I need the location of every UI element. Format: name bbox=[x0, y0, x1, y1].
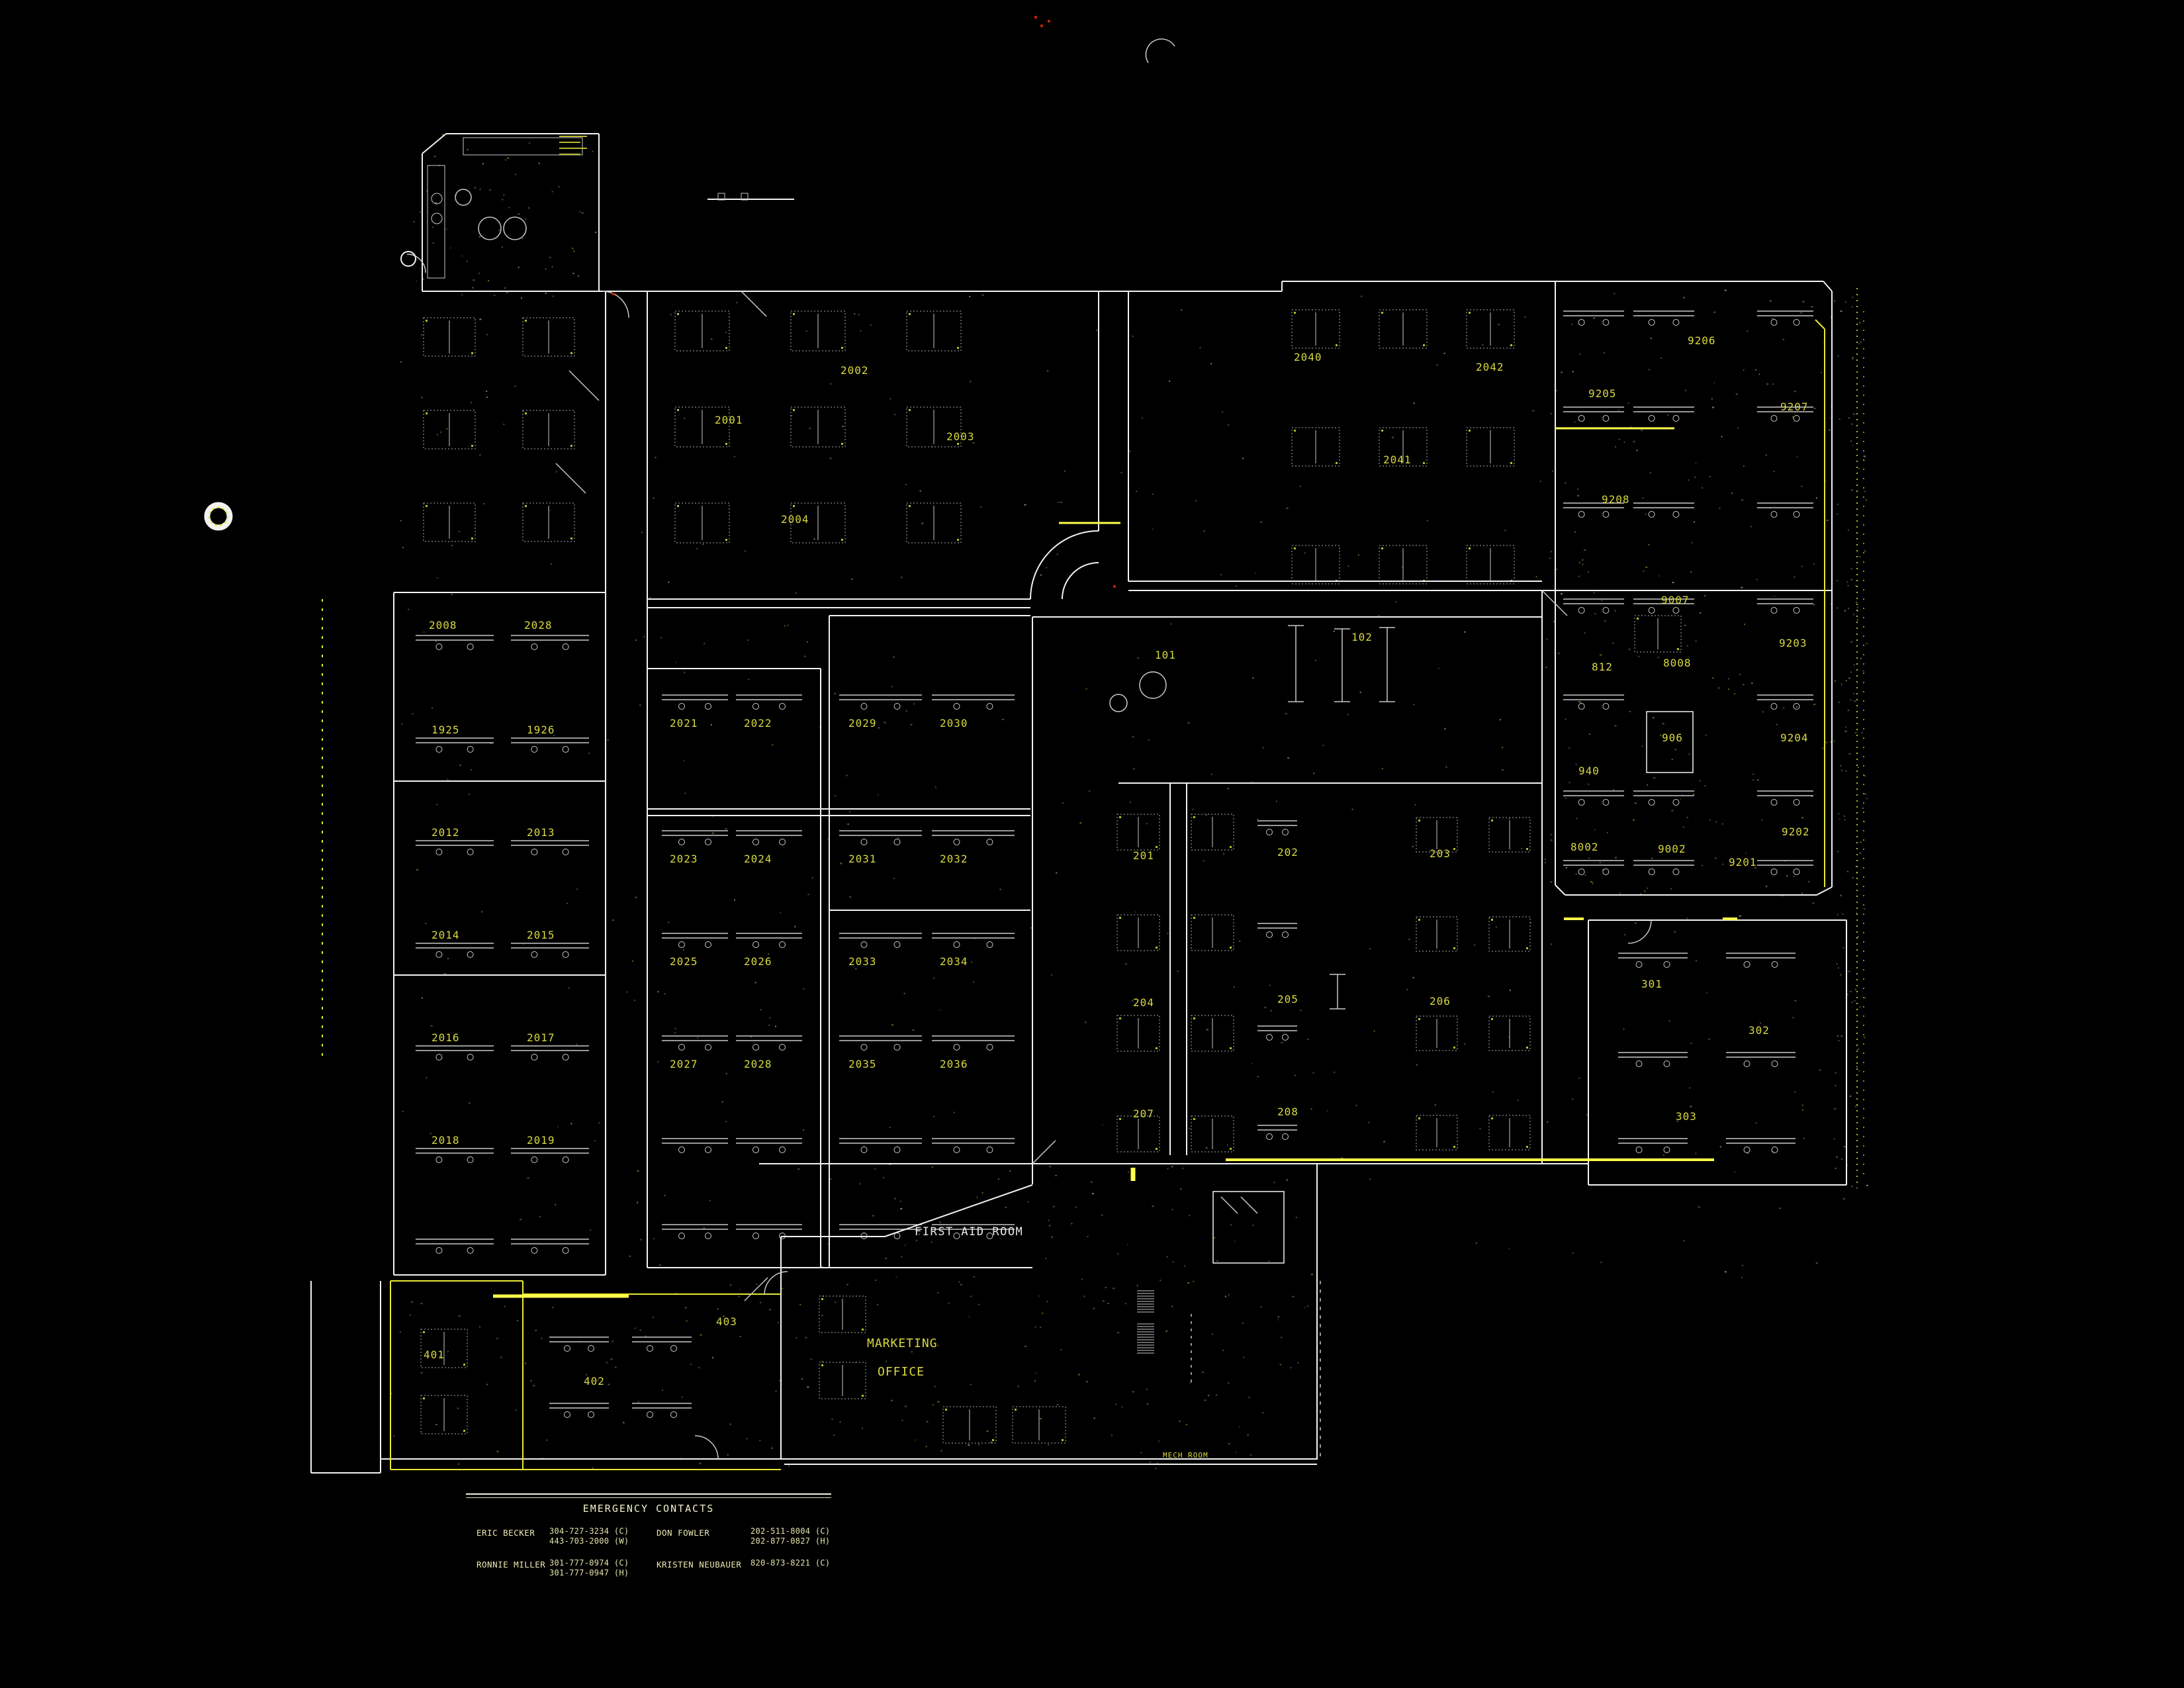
cubicle-speck bbox=[1418, 1117, 1420, 1119]
noise-dot bbox=[1747, 330, 1748, 332]
noise-dot bbox=[592, 151, 594, 152]
noise-dot bbox=[1865, 793, 1866, 794]
noise-dot bbox=[1315, 660, 1316, 661]
workstation-label: 9201 bbox=[1729, 856, 1757, 868]
noise-dot bbox=[891, 1400, 893, 1401]
noise-dot bbox=[641, 1239, 642, 1241]
noise-dot bbox=[1093, 1308, 1095, 1309]
noise-dot bbox=[401, 724, 402, 725]
noise-dot bbox=[446, 428, 447, 430]
cubicle-speck bbox=[1119, 816, 1121, 818]
noise-dot bbox=[1171, 1306, 1173, 1307]
noise-dot bbox=[833, 1434, 835, 1436]
chair-circle bbox=[467, 644, 473, 650]
noise-dot bbox=[1075, 1206, 1077, 1207]
noise-dot bbox=[690, 1364, 692, 1365]
cubicle-speck bbox=[1453, 1146, 1455, 1148]
noise-dot bbox=[1113, 1288, 1115, 1289]
noise-dot bbox=[978, 1444, 979, 1445]
noise-dot bbox=[811, 1358, 812, 1360]
noise-dot bbox=[664, 1195, 665, 1196]
noise-dot bbox=[1239, 1426, 1240, 1427]
noise-dot bbox=[1857, 1049, 1859, 1050]
noise-dot bbox=[1048, 1220, 1049, 1221]
noise-dot bbox=[1234, 986, 1235, 988]
chair-circle bbox=[467, 1248, 473, 1254]
noise-dot bbox=[1691, 1043, 1692, 1044]
chair-circle bbox=[1603, 608, 1609, 614]
cubicle-speck bbox=[471, 352, 473, 354]
cubicle-speck bbox=[821, 1298, 823, 1300]
noise-dot bbox=[1604, 620, 1606, 622]
chair-circle bbox=[861, 942, 867, 948]
noise-dot bbox=[425, 923, 426, 924]
noise-dot bbox=[1509, 818, 1510, 820]
contact-phone: 301-777-0974 (C) bbox=[549, 1558, 629, 1568]
chair-circle bbox=[671, 1412, 677, 1418]
noise-dot bbox=[1383, 1141, 1385, 1143]
cubicle-speck bbox=[1677, 648, 1679, 650]
noise-dot bbox=[559, 186, 560, 187]
noise-dot bbox=[784, 626, 786, 627]
chair-circle bbox=[1578, 800, 1584, 806]
chair-circle bbox=[563, 849, 569, 855]
chair-circle bbox=[954, 1147, 960, 1153]
noise-dot bbox=[1117, 1332, 1119, 1333]
noise-dot bbox=[1081, 1278, 1083, 1280]
noise-dot bbox=[960, 1284, 962, 1286]
noise-dot bbox=[1578, 1078, 1580, 1079]
chair-circle bbox=[780, 942, 786, 948]
chair-circle bbox=[753, 839, 759, 845]
noise-dot bbox=[1545, 859, 1546, 860]
noise-dot bbox=[1857, 619, 1858, 620]
noise-dot bbox=[1271, 1010, 1272, 1011]
noise-dot bbox=[801, 1378, 803, 1380]
chair-circle bbox=[1603, 512, 1609, 518]
noise-dot bbox=[1368, 1122, 1369, 1123]
workstation-label: 2034 bbox=[940, 955, 968, 968]
noise-dot bbox=[1715, 821, 1717, 823]
noise-dot bbox=[1653, 777, 1655, 778]
noise-dot bbox=[674, 1032, 676, 1033]
noise-dot bbox=[1837, 851, 1839, 852]
chair-circle bbox=[861, 1045, 867, 1051]
noise-dot bbox=[1772, 318, 1774, 319]
noise-dot bbox=[1819, 1069, 1821, 1070]
noise-dot bbox=[878, 794, 879, 796]
wall-line bbox=[1823, 281, 1832, 291]
noise-dot bbox=[1257, 1076, 1259, 1077]
noise-dot bbox=[1862, 808, 1864, 809]
chair-circle bbox=[705, 704, 711, 710]
noise-dot bbox=[1565, 483, 1566, 484]
cubicle-speck bbox=[426, 412, 428, 414]
cubicle-speck bbox=[957, 347, 959, 349]
noise-dot bbox=[891, 686, 893, 687]
chair-circle bbox=[467, 849, 473, 855]
noise-dot bbox=[469, 794, 470, 795]
chair-circle bbox=[1664, 1147, 1670, 1153]
table-circle bbox=[401, 252, 416, 266]
noise-dot bbox=[1042, 1313, 1043, 1314]
cubicle-speck bbox=[677, 409, 679, 411]
noise-dot bbox=[1561, 371, 1563, 373]
noise-dot bbox=[1641, 430, 1643, 431]
noise-dot bbox=[1851, 424, 1852, 425]
chair-circle bbox=[1772, 1147, 1778, 1153]
noise-dot bbox=[1851, 1002, 1852, 1003]
noise-dot bbox=[1141, 418, 1143, 419]
noise-dot bbox=[1840, 895, 1842, 896]
noise-dot bbox=[911, 724, 913, 726]
noise-dot bbox=[1265, 1007, 1266, 1008]
chair-circle bbox=[1649, 800, 1655, 806]
contact-phone: 202-877-0827 (H) bbox=[751, 1536, 830, 1546]
noise-dot bbox=[1107, 1303, 1109, 1304]
workstation-label: 201 bbox=[1133, 849, 1154, 862]
noise-dot bbox=[490, 189, 491, 191]
noise-dot bbox=[525, 1363, 526, 1364]
noise-dot bbox=[576, 888, 578, 890]
chair-circle bbox=[647, 1346, 653, 1352]
chair-circle bbox=[1649, 869, 1655, 875]
chair-circle bbox=[705, 1045, 711, 1051]
noise-dot bbox=[1704, 785, 1706, 786]
noise-dot bbox=[1334, 1072, 1335, 1073]
contact-name: RONNIE MILLER bbox=[477, 1560, 545, 1570]
noise-dot bbox=[778, 1322, 779, 1323]
noise-dot bbox=[772, 745, 773, 746]
chair-circle bbox=[436, 849, 442, 855]
noise-dot bbox=[1600, 1262, 1602, 1263]
noise-dot bbox=[422, 998, 423, 999]
noise-dot bbox=[1712, 677, 1713, 679]
noise-dot bbox=[891, 1024, 893, 1025]
noise-dot bbox=[755, 982, 756, 983]
noise-dot bbox=[1683, 826, 1684, 827]
noise-dot bbox=[987, 1430, 989, 1432]
cubicle-speck bbox=[909, 505, 911, 507]
cubicle-speck bbox=[1491, 919, 1493, 921]
red-mark bbox=[1113, 585, 1116, 588]
noise-dot bbox=[1694, 477, 1696, 478]
noise-dot bbox=[522, 238, 523, 239]
workstation-label: 940 bbox=[1578, 765, 1600, 777]
noise-dot bbox=[933, 1116, 934, 1117]
accent-wall bbox=[1815, 320, 1825, 329]
noise-dot bbox=[437, 434, 438, 436]
noise-dot bbox=[969, 1316, 970, 1317]
noise-dot bbox=[1731, 492, 1733, 494]
noise-dot bbox=[709, 1200, 711, 1201]
cubicle-speck bbox=[1230, 846, 1232, 848]
noise-dot bbox=[546, 1440, 547, 1441]
noise-dot bbox=[459, 765, 461, 766]
noise-dot bbox=[1612, 643, 1614, 644]
noise-dot bbox=[1369, 1178, 1371, 1180]
noise-dot bbox=[1087, 1236, 1089, 1237]
noise-dot bbox=[1743, 684, 1744, 685]
noise-dot bbox=[712, 1357, 713, 1358]
noise-dot bbox=[982, 1192, 983, 1194]
door-arc bbox=[1062, 563, 1099, 599]
noise-dot bbox=[1002, 719, 1004, 720]
noise-dot bbox=[1866, 499, 1867, 500]
chair-circle bbox=[987, 704, 993, 710]
noise-dot bbox=[539, 163, 540, 164]
cubicle-speck bbox=[1526, 1146, 1528, 1148]
noise-dot bbox=[1038, 1295, 1040, 1297]
cubicle-speck bbox=[1119, 917, 1121, 919]
noise-dot bbox=[486, 1384, 488, 1385]
noise-dot bbox=[1623, 442, 1625, 443]
noise-dot bbox=[842, 426, 843, 427]
noise-dot bbox=[1089, 790, 1090, 792]
workstation-label: 2002 bbox=[841, 364, 869, 377]
noise-dot bbox=[779, 1380, 780, 1382]
chair-circle bbox=[987, 942, 993, 948]
noise-dot bbox=[1794, 1092, 1796, 1093]
noise-dot bbox=[1056, 872, 1057, 874]
chair-circle bbox=[753, 704, 759, 710]
noise-dot bbox=[1040, 575, 1042, 576]
chair-circle bbox=[1649, 416, 1655, 422]
contact-phone: 443-703-2000 (W) bbox=[549, 1536, 629, 1546]
noise-dot bbox=[1444, 353, 1445, 354]
noise-dot bbox=[635, 1328, 636, 1329]
noise-dot bbox=[797, 1168, 799, 1170]
noise-dot bbox=[515, 385, 516, 387]
noise-dot bbox=[1030, 927, 1032, 929]
noise-dot bbox=[592, 1468, 594, 1469]
noise-dot bbox=[1212, 1334, 1213, 1335]
noise-dot bbox=[796, 592, 797, 594]
noise-dot bbox=[1165, 1331, 1167, 1332]
chair-circle bbox=[1673, 608, 1679, 614]
cubicle-speck bbox=[570, 445, 572, 447]
noise-dot bbox=[1158, 1440, 1160, 1442]
noise-dot bbox=[1540, 481, 1541, 482]
cubicle-speck bbox=[821, 1364, 823, 1366]
noise-dot bbox=[1623, 1029, 1625, 1030]
noise-dot bbox=[615, 1367, 616, 1368]
noise-dot bbox=[664, 993, 666, 994]
noise-dot bbox=[1845, 731, 1847, 732]
workstation-label: 203 bbox=[1430, 847, 1451, 860]
noise-dot bbox=[1167, 1168, 1169, 1169]
noise-dot bbox=[635, 639, 637, 641]
chair-circle bbox=[531, 849, 537, 855]
chair-circle bbox=[1649, 320, 1655, 326]
noise-dot bbox=[1761, 820, 1762, 821]
noise-dot bbox=[1227, 1145, 1228, 1146]
noise-dot bbox=[507, 158, 509, 159]
noise-dot bbox=[1863, 671, 1864, 672]
noise-dot bbox=[1858, 468, 1860, 469]
noise-dot bbox=[1313, 1072, 1314, 1074]
noise-dot bbox=[1783, 707, 1784, 708]
noise-dot bbox=[1822, 748, 1823, 749]
noise-dot bbox=[1844, 816, 1845, 817]
noise-dot bbox=[1474, 945, 1475, 946]
noise-dot bbox=[1576, 818, 1578, 819]
noise-dot bbox=[1228, 1294, 1230, 1295]
noise-dot bbox=[1524, 316, 1525, 318]
noise-dot bbox=[1704, 595, 1706, 596]
chair-circle bbox=[588, 1412, 594, 1418]
workstation-label: 2027 bbox=[670, 1058, 698, 1070]
chair-circle bbox=[436, 747, 442, 753]
noise-dot bbox=[1111, 1434, 1113, 1436]
workstation-label: 9203 bbox=[1779, 637, 1807, 649]
noise-dot bbox=[644, 636, 645, 637]
noise-dot bbox=[1706, 735, 1707, 736]
noise-dot bbox=[1696, 1153, 1697, 1154]
noise-dot bbox=[830, 383, 831, 385]
room-label: FIRST AID ROOM bbox=[915, 1225, 1023, 1239]
noise-dot bbox=[1369, 948, 1371, 949]
noise-dot bbox=[645, 1336, 647, 1337]
noise-dot bbox=[1064, 471, 1066, 472]
noise-dot bbox=[1814, 408, 1816, 409]
door-leaf bbox=[556, 463, 586, 493]
noise-dot bbox=[740, 1289, 741, 1290]
workstation-label: 301 bbox=[1641, 978, 1662, 990]
noise-dot bbox=[1565, 798, 1567, 799]
noise-dot bbox=[1702, 487, 1703, 489]
noise-dot bbox=[1510, 990, 1511, 991]
noise-dot bbox=[552, 266, 553, 267]
noise-dot bbox=[525, 218, 527, 220]
noise-dot bbox=[1378, 615, 1379, 616]
noise-dot bbox=[1203, 1372, 1204, 1373]
cubicle-speck bbox=[1193, 816, 1195, 818]
chair-circle bbox=[1603, 320, 1609, 326]
chair-circle bbox=[563, 952, 569, 958]
cubicle-speck bbox=[1193, 1017, 1195, 1019]
noise-dot bbox=[549, 257, 551, 258]
noise-dot bbox=[1300, 1009, 1301, 1011]
chair-circle bbox=[753, 1147, 759, 1153]
noise-dot bbox=[874, 1168, 876, 1170]
noise-dot bbox=[1770, 301, 1772, 302]
workstation-label: 2015 bbox=[527, 929, 555, 941]
contact-phones: 301-777-0974 (C)301-777-0947 (H) bbox=[549, 1558, 629, 1578]
noise-dot bbox=[1091, 1182, 1093, 1183]
contact-phones: 820-873-8221 (C) bbox=[751, 1558, 830, 1568]
noise-dot bbox=[1545, 667, 1547, 668]
noise-dot bbox=[1518, 1100, 1519, 1101]
noise-dot bbox=[1847, 585, 1848, 586]
noise-dot bbox=[1715, 857, 1716, 859]
noise-dot bbox=[1835, 1072, 1837, 1074]
door-leaf bbox=[745, 1278, 768, 1301]
workstation-label: 2030 bbox=[940, 717, 968, 729]
noise-dot bbox=[1136, 491, 1137, 492]
workstation-label: 2014 bbox=[432, 929, 460, 941]
noise-dot bbox=[1866, 643, 1867, 644]
noise-dot bbox=[535, 1330, 537, 1331]
cubicle-speck bbox=[525, 505, 527, 507]
noise-dot bbox=[641, 532, 643, 533]
door-arc bbox=[1146, 39, 1175, 63]
noise-dot bbox=[1801, 486, 1802, 487]
workstation-label: 206 bbox=[1430, 995, 1451, 1008]
noise-dot bbox=[1040, 1418, 1042, 1419]
noise-dot bbox=[1062, 802, 1064, 804]
noise-dot bbox=[1182, 1168, 1183, 1169]
noise-dot bbox=[1189, 1215, 1190, 1216]
noise-dot bbox=[1220, 574, 1222, 575]
cubicle-speck bbox=[957, 443, 959, 445]
workstation-label: 2024 bbox=[744, 853, 772, 865]
noise-dot bbox=[402, 547, 404, 548]
cubicle-speck bbox=[793, 505, 795, 507]
noise-dot bbox=[1650, 472, 1651, 473]
noise-dot bbox=[1374, 1030, 1375, 1031]
noise-dot bbox=[1277, 1316, 1279, 1317]
noise-dot bbox=[1190, 1382, 1191, 1383]
noise-dot bbox=[1137, 1285, 1138, 1286]
chair-circle bbox=[954, 1045, 960, 1051]
noise-dot bbox=[1830, 741, 1831, 743]
noise-dot bbox=[807, 641, 808, 643]
cubicle-speck bbox=[1423, 462, 1425, 464]
noise-dot bbox=[639, 705, 641, 706]
noise-dot bbox=[1744, 624, 1745, 625]
noise-dot bbox=[926, 1446, 927, 1447]
workstation-label: 205 bbox=[1277, 993, 1298, 1006]
chair-circle bbox=[531, 952, 537, 958]
contact-name: ERIC BECKER bbox=[477, 1528, 535, 1538]
noise-dot bbox=[1850, 641, 1852, 643]
noise-dot bbox=[1574, 422, 1575, 423]
noise-dot bbox=[634, 1000, 635, 1001]
workstation-label: 202 bbox=[1277, 846, 1298, 859]
noise-dot bbox=[504, 1306, 506, 1307]
noise-dot bbox=[414, 221, 415, 222]
noise-dot bbox=[1171, 1166, 1173, 1167]
noise-dot bbox=[1129, 451, 1130, 452]
noise-dot bbox=[1721, 436, 1723, 438]
noise-dot bbox=[1034, 1380, 1036, 1382]
workstation-label: 401 bbox=[424, 1348, 445, 1361]
noise-dot bbox=[1210, 363, 1212, 365]
noise-dot bbox=[1304, 1307, 1305, 1309]
noise-dot bbox=[1382, 768, 1383, 769]
noise-dot bbox=[472, 287, 474, 289]
workstation-label: 2018 bbox=[432, 1134, 460, 1147]
chair-circle bbox=[679, 704, 685, 710]
cubicle-speck bbox=[1156, 947, 1158, 949]
chair-circle bbox=[1771, 512, 1777, 518]
noise-dot bbox=[1092, 1193, 1094, 1194]
noise-dot bbox=[653, 1238, 655, 1239]
noise-dot bbox=[590, 1229, 591, 1231]
noise-dot bbox=[1406, 989, 1408, 990]
noise-dot bbox=[1843, 947, 1844, 949]
noise-dot bbox=[1615, 446, 1616, 447]
chair-circle bbox=[679, 1147, 685, 1153]
noise-dot bbox=[505, 160, 506, 161]
noise-dot bbox=[1588, 784, 1589, 785]
noise-dot bbox=[700, 1463, 702, 1464]
noise-dot bbox=[921, 523, 923, 524]
noise-dot bbox=[905, 484, 907, 485]
noise-dot bbox=[1835, 680, 1836, 682]
cubicle-speck bbox=[1469, 430, 1471, 432]
